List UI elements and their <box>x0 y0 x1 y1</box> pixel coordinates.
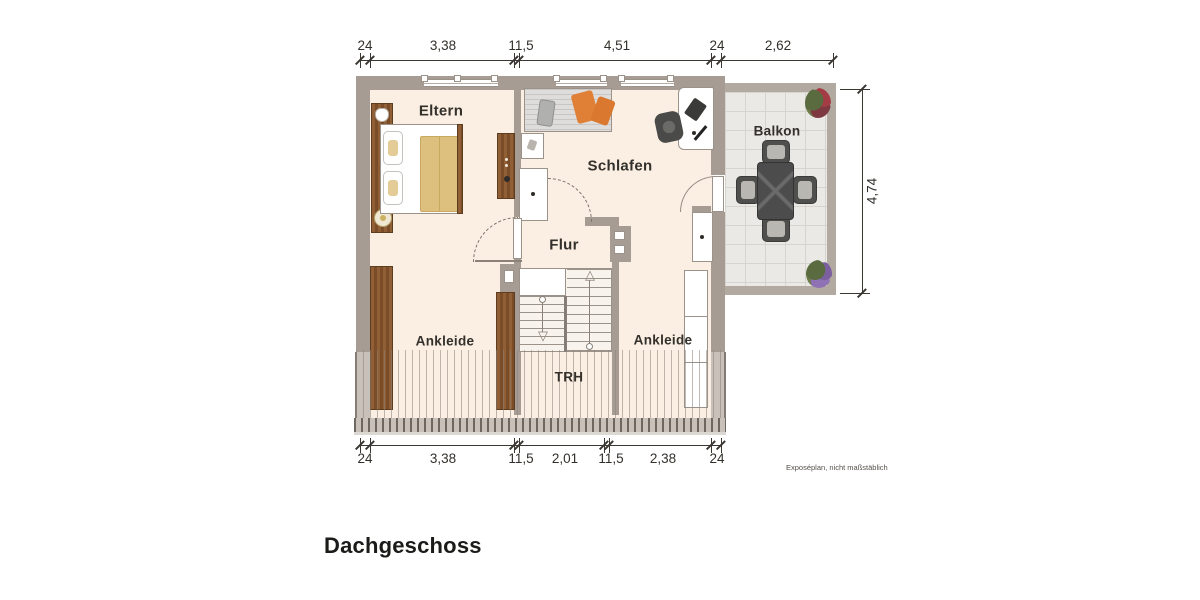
dim-ext-line <box>840 89 870 90</box>
dim-line-top <box>360 60 833 61</box>
dim-label: 24 <box>357 38 372 53</box>
dim-label: 11,5 <box>508 38 533 53</box>
disclaimer-note: Exposéplan, nicht maßstäblich <box>786 463 888 472</box>
floorplan-canvas: ▽ △ Eltern Schlafen Flur Ankleide Anklei… <box>0 0 1200 600</box>
dim-label: 2,01 <box>552 451 578 466</box>
dim-line-right <box>862 89 863 293</box>
dims-layer: 24 3,38 11,5 4,51 24 2,62 24 3,38 11,5 2… <box>0 0 1200 600</box>
dim-label: 24 <box>709 451 724 466</box>
dim-label: 4,74 <box>865 178 880 204</box>
dim-label: 24 <box>709 38 724 53</box>
dim-label: 11,5 <box>508 451 533 466</box>
dim-ext-line <box>840 293 870 294</box>
dim-line-bottom <box>360 445 721 446</box>
dim-label: 2,38 <box>650 451 676 466</box>
dim-label: 11,5 <box>598 451 623 466</box>
dim-label: 3,38 <box>430 38 456 53</box>
dim-label: 2,62 <box>765 38 791 53</box>
page-title: Dachgeschoss <box>324 533 482 559</box>
dim-label: 4,51 <box>604 38 630 53</box>
dim-label: 3,38 <box>430 451 456 466</box>
dim-label: 24 <box>357 451 372 466</box>
